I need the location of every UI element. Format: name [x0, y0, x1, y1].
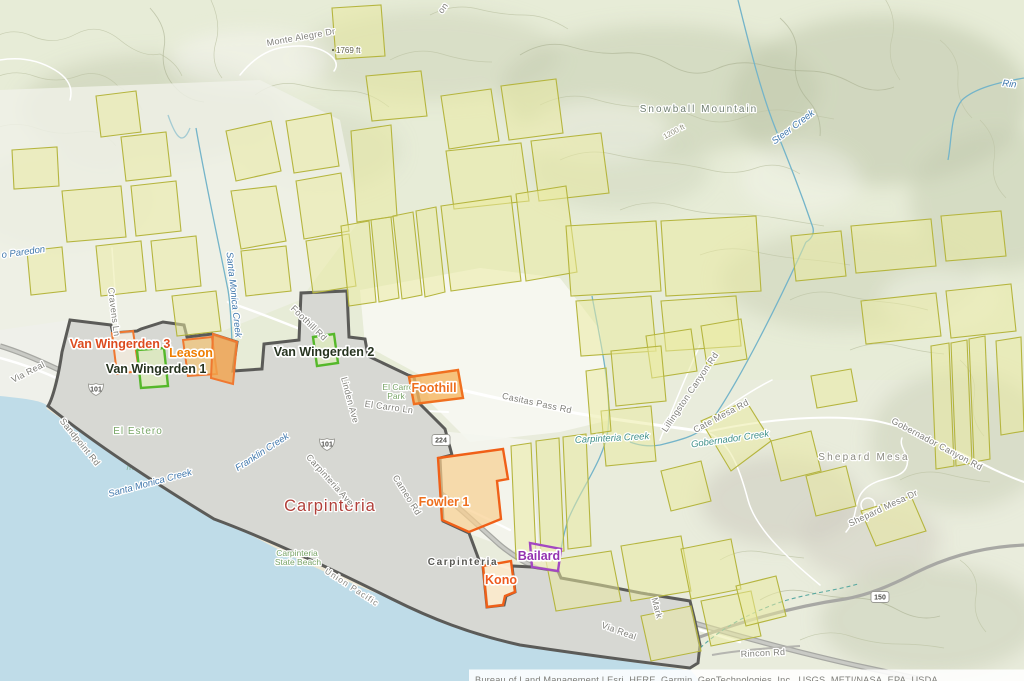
us-101-shield-text-2: 101 [321, 442, 333, 449]
us-101-shield-text: 101 [90, 387, 102, 394]
foothill-label: Foothill [411, 381, 456, 395]
bailard-label: Bailard [518, 549, 560, 563]
parcel-fowler-1[interactable] [438, 449, 508, 532]
shepard-mesa-label: Shepard Mesa [818, 452, 909, 463]
map-viewport[interactable]: Snowball Mountain Shepard Mesa 1769 ft 1… [0, 0, 1024, 681]
snowball-mountain-label: Snowball Mountain [640, 104, 759, 115]
attribution-text: Bureau of Land Management | Esri, HERE, … [475, 675, 938, 681]
ca-224-shield-text: 224 [435, 438, 447, 445]
leason-label: Leason [169, 346, 213, 360]
el-estero-label: El Estero [113, 426, 163, 437]
van-wingerden-2-label: Van Wingerden 2 [274, 345, 375, 359]
ca-150-shield: 150 [871, 592, 889, 603]
van-wingerden-3-label: Van Wingerden 3 [70, 337, 171, 351]
fowler-1-label: Fowler 1 [419, 495, 470, 509]
summit-dot [332, 49, 334, 51]
elevation-1769-label: 1769 ft [336, 46, 361, 55]
attribution-bar: Bureau of Land Management | Esri, HERE, … [469, 670, 1024, 681]
carpinteria-city-label: Carpinteria [284, 497, 376, 515]
map-canvas[interactable]: Snowball Mountain Shepard Mesa 1769 ft 1… [0, 0, 1024, 681]
kono-label: Kono [485, 573, 517, 587]
el-carro-park-label-2: Park [387, 391, 405, 401]
state-beach-label-2: State Beach [275, 557, 322, 567]
ca-150-shield-text: 150 [874, 595, 886, 602]
carpinteria-small-label: Carpinteria [428, 557, 498, 568]
parcel-leason-creek[interactable] [211, 334, 237, 384]
van-wingerden-1-label: Van Wingerden 1 [106, 362, 207, 376]
ca-224-shield: 224 [432, 435, 450, 446]
rincon-creek-label: Rin [1002, 78, 1017, 90]
